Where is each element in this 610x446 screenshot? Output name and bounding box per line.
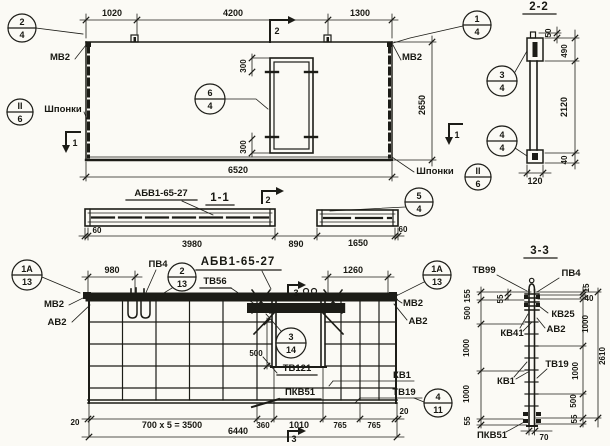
svg-text:МВ2: МВ2 (50, 52, 70, 63)
label-pkv51: ПКВ51 (477, 421, 526, 441)
dim-chain-plan-bottom: 20 700 x 5 = 3500 360 1010 765 765 20 64… (71, 368, 409, 440)
svg-text:Шпонки: Шпонки (416, 166, 454, 177)
dim-chain-2-2: 50 490 2120 40 (539, 27, 579, 169)
dim-4200: 4200 (223, 8, 243, 18)
svg-text:4: 4 (207, 101, 212, 111)
engineering-drawing-sheet: 1020 4200 1300 6520 2650 300 300 МВ2 МВ2 (0, 0, 610, 446)
svg-text:2: 2 (274, 26, 279, 36)
dim-20-right: 20 (400, 407, 409, 416)
svg-text:2120: 2120 (559, 97, 569, 117)
svg-text:КВ1: КВ1 (497, 376, 516, 387)
dim-3500: 700 x 5 = 3500 (142, 420, 202, 430)
svg-text:70: 70 (540, 433, 549, 442)
svg-text:ПВ4: ПВ4 (562, 268, 582, 279)
label-shponki-left: Шпонки (44, 104, 87, 119)
corner-embed-left (86, 42, 91, 47)
svg-text:500: 500 (569, 394, 578, 408)
cut-mark-2-top: 2 (270, 16, 296, 42)
dim-chain-3-3-right: 15 40 1000 1000 500 55 2610 (536, 283, 607, 427)
svg-text:ТВ121: ТВ121 (283, 363, 312, 374)
svg-text:40: 40 (560, 155, 569, 164)
dim-120: 120 (519, 165, 551, 186)
svg-text:2-2: 2-2 (529, 1, 549, 13)
panel-strip-right (317, 210, 398, 226)
svg-text:4: 4 (499, 143, 504, 153)
label-pkv51: ПКВ51 (252, 387, 321, 407)
label-pv4: ПВ4 (537, 268, 581, 292)
callout-2-4: 24 (8, 14, 83, 42)
svg-text:6: 6 (207, 88, 212, 98)
svg-text:АВ2: АВ2 (408, 316, 427, 327)
section-body (527, 32, 543, 163)
svg-text:1000: 1000 (581, 315, 590, 333)
svg-text:55: 55 (570, 414, 579, 423)
svg-text:5: 5 (416, 191, 421, 201)
dim-1020: 1020 (102, 8, 122, 18)
label-kv41: КВ41 (500, 314, 532, 339)
svg-text:3: 3 (291, 434, 296, 444)
svg-text:50: 50 (544, 28, 553, 37)
label-tv19: ТВ19 (537, 359, 569, 378)
svg-text:1000: 1000 (571, 362, 580, 380)
cut-mark-1-right: 1 (445, 124, 462, 145)
dim-6520: 6520 (228, 165, 248, 175)
svg-text:2: 2 (179, 266, 184, 276)
callout-II-6-left: II6 (7, 99, 33, 125)
label-kv1: КВ1 (497, 362, 528, 387)
svg-text:КВ25: КВ25 (551, 309, 575, 320)
svg-text:500: 500 (249, 349, 263, 358)
svg-text:500: 500 (463, 306, 472, 320)
svg-text:13: 13 (22, 277, 32, 287)
svg-text:4: 4 (416, 204, 421, 214)
callout-3-4: 34 (487, 51, 527, 96)
dim-20-left: 20 (71, 418, 80, 427)
svg-text:1: 1 (474, 14, 479, 24)
svg-text:ТВ19: ТВ19 (392, 387, 415, 398)
svg-text:ПВ4: ПВ4 (149, 259, 169, 270)
svg-text:14: 14 (286, 345, 296, 355)
svg-text:55: 55 (496, 294, 505, 303)
svg-text:1А: 1А (21, 264, 33, 274)
svg-text:1000: 1000 (462, 385, 471, 403)
dim-70: 70 (521, 427, 552, 442)
svg-text:АБВ1-65-27: АБВ1-65-27 (134, 188, 187, 199)
label-mv2-left: МВ2 (50, 45, 86, 63)
svg-text:ПКВ51: ПКВ51 (285, 387, 316, 398)
callout-1a-13-right: 1А13 (398, 261, 451, 295)
svg-text:1-1: 1-1 (210, 192, 230, 204)
dim-1260: 1260 (322, 265, 394, 294)
callout-4-4: 44 (487, 126, 527, 156)
svg-text:4: 4 (474, 27, 479, 37)
svg-text:40: 40 (585, 294, 594, 303)
svg-text:ТВ56: ТВ56 (203, 276, 226, 287)
dim-890: 890 (288, 239, 303, 249)
corner-embed-right (389, 292, 397, 299)
svg-text:4: 4 (435, 392, 440, 402)
svg-text:Шпонки: Шпонки (44, 104, 82, 115)
section-title: 3-3 (524, 245, 557, 258)
svg-text:490: 490 (560, 44, 569, 58)
svg-text:55: 55 (463, 416, 472, 425)
svg-text:КВ41: КВ41 (500, 328, 524, 339)
callout-5-4: 54 (330, 188, 433, 216)
dim-2650: 2650 (417, 95, 427, 115)
svg-text:4: 4 (499, 83, 504, 93)
label-mv2-left: МВ2 (44, 297, 85, 310)
label-tv121: ТВ121 (263, 357, 317, 375)
section-title: 1-1 (206, 192, 234, 205)
svg-text:3: 3 (288, 332, 293, 342)
svg-text:6: 6 (17, 114, 22, 124)
dim-360: 360 (256, 421, 270, 430)
label-av2: АВ2 (537, 318, 566, 335)
corner-embed-right (387, 42, 392, 47)
callout-6-4: 64 (195, 84, 268, 114)
svg-text:1: 1 (72, 138, 77, 148)
svg-text:3-3: 3-3 (530, 245, 550, 257)
dim-765a: 765 (333, 421, 347, 430)
dim-1300: 1300 (350, 8, 370, 18)
callout-II-6-right: II6 (465, 164, 491, 190)
svg-text:6: 6 (475, 179, 480, 189)
svg-text:13: 13 (177, 279, 187, 289)
section-3-3-view: 3-3 155 500 1 (462, 245, 607, 442)
dim-980: 980 (82, 265, 142, 294)
svg-text:МВ2: МВ2 (403, 298, 423, 309)
svg-text:3: 3 (499, 70, 504, 80)
svg-text:155: 155 (463, 289, 472, 303)
svg-text:2610: 2610 (598, 347, 607, 365)
lifting-loops (131, 35, 331, 42)
svg-text:1: 1 (454, 130, 459, 140)
svg-text:4: 4 (19, 30, 24, 40)
section-1-1-view: 1-1 АБВ1-65-27 60 3980 890 (79, 188, 433, 249)
cut-mark-1-left: 1 (62, 132, 80, 153)
dim-chain-top: 1020 4200 1300 (80, 8, 398, 38)
dim-6440: 6440 (228, 426, 248, 436)
corner-embed-left (83, 292, 91, 299)
svg-text:300: 300 (239, 59, 248, 73)
svg-text:МВ2: МВ2 (402, 52, 422, 63)
svg-text:II: II (475, 166, 480, 176)
dim-6520: 6520 (80, 162, 398, 181)
section-2-2-view: 2-2 50 490 2120 40 120 34 (487, 1, 579, 186)
reinforcement-plan-view: АБВ1-65-27 (12, 256, 452, 444)
panel-strip-left (85, 209, 275, 226)
bar-body (523, 278, 541, 426)
svg-text:13: 13 (432, 277, 442, 287)
svg-text:120: 120 (527, 176, 542, 186)
svg-text:980: 980 (104, 265, 119, 275)
label-tv99: ТВ99 (472, 265, 527, 291)
svg-text:15: 15 (582, 283, 591, 292)
section-title: 2-2 (523, 1, 556, 14)
svg-text:АВ2: АВ2 (546, 324, 565, 335)
svg-text:АВ2: АВ2 (47, 317, 66, 328)
svg-text:АБВ1-65-27: АБВ1-65-27 (201, 256, 276, 268)
svg-text:4: 4 (499, 130, 504, 140)
rebar-grid (83, 292, 397, 403)
callout-1-4: 14 (393, 11, 491, 43)
callout-1a-13-left: 1А13 (12, 260, 80, 293)
dim-3980: 3980 (182, 239, 202, 249)
svg-text:II: II (17, 101, 22, 111)
label-kv25: КВ25 (539, 306, 575, 320)
svg-text:3: 3 (293, 288, 298, 298)
label-pv4: ПВ4 (144, 259, 168, 297)
dim-60-right: 60 (399, 225, 408, 234)
svg-text:2: 2 (19, 17, 24, 27)
product-label: АБВ1-65-27 (126, 188, 213, 215)
dim-1010: 1010 (289, 420, 309, 430)
svg-text:МВ2: МВ2 (44, 299, 64, 310)
dim-chain-3-3-left: 155 500 1000 1000 55 55 (462, 287, 531, 428)
dim-1650: 1650 (348, 238, 368, 248)
svg-text:ПКВ51: ПКВ51 (477, 430, 508, 441)
svg-text:2: 2 (265, 195, 270, 205)
cut-mark-2-bottom: 2 (262, 187, 284, 205)
svg-text:1000: 1000 (462, 339, 471, 357)
svg-text:ТВ19: ТВ19 (545, 359, 568, 370)
svg-text:1260: 1260 (343, 265, 363, 275)
svg-text:1А: 1А (431, 264, 443, 274)
svg-text:11: 11 (433, 405, 443, 415)
dim-chain-1-1: 60 3980 890 1650 60 (79, 225, 408, 249)
door-opening (266, 58, 317, 153)
svg-text:КВ1: КВ1 (393, 370, 412, 381)
dim-60-left: 60 (93, 226, 102, 235)
panel-elevation-view: 1020 4200 1300 6520 2650 300 300 МВ2 МВ2 (7, 8, 491, 205)
svg-text:300: 300 (239, 140, 248, 154)
callout-4-11: 411 (414, 389, 452, 417)
svg-text:ТВ99: ТВ99 (472, 265, 495, 276)
dim-765b: 765 (367, 421, 381, 430)
label-kv1: КВ1 (329, 370, 414, 386)
label-mv2-right: МВ2 (393, 45, 422, 63)
